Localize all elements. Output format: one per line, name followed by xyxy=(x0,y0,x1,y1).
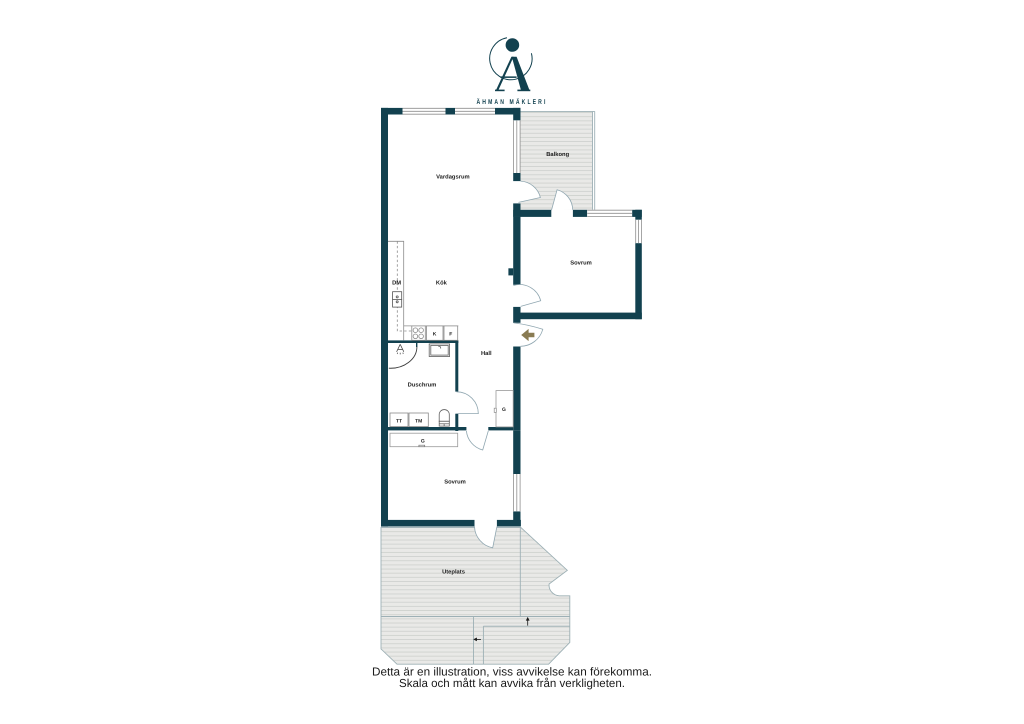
svg-text:Sovrum: Sovrum xyxy=(570,260,592,267)
svg-text:Hall: Hall xyxy=(481,350,492,357)
svg-text:Sovrum: Sovrum xyxy=(444,479,466,486)
svg-text:TM: TM xyxy=(415,418,422,424)
svg-text:Balkong: Balkong xyxy=(546,151,569,158)
svg-text:ÄHMAN MÄKLERI: ÄHMAN MÄKLERI xyxy=(477,98,548,106)
svg-text:TT: TT xyxy=(396,418,402,424)
svg-text:F: F xyxy=(449,331,452,337)
svg-text:Skala och mått kan avvika från: Skala och mått kan avvika från verklighe… xyxy=(399,677,625,690)
svg-text:DM: DM xyxy=(392,281,401,287)
svg-text:Kök: Kök xyxy=(436,280,448,287)
svg-text:G: G xyxy=(502,407,506,413)
svg-text:Duschrum: Duschrum xyxy=(408,381,437,388)
svg-text:Vardagsrum: Vardagsrum xyxy=(436,174,470,181)
svg-text:G: G xyxy=(421,438,425,444)
svg-text:Uteplats: Uteplats xyxy=(442,569,465,576)
svg-text:K: K xyxy=(433,331,437,337)
